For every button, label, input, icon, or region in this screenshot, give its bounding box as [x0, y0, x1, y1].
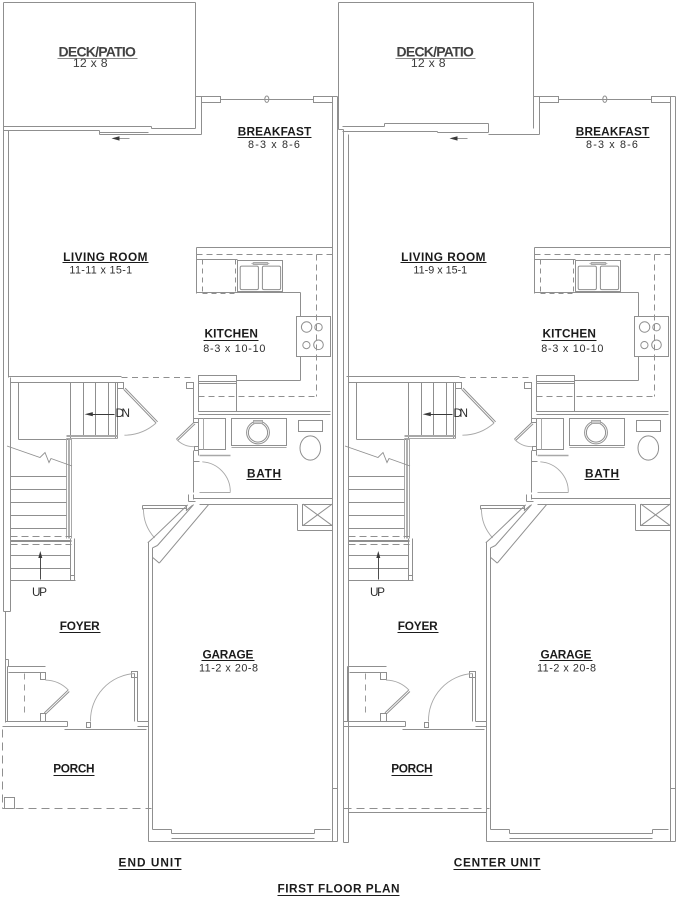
svg-text:11-2 x 20-8: 11-2 x 20-8	[537, 663, 596, 675]
svg-text:8-3 x 8-6: 8-3 x 8-6	[248, 139, 300, 151]
svg-text:GARAGE: GARAGE	[202, 648, 253, 662]
svg-text:PORCH: PORCH	[53, 762, 94, 776]
svg-text:UP: UP	[32, 585, 47, 599]
svg-text:KITCHEN: KITCHEN	[204, 327, 258, 341]
svg-text:FIRST FLOOR PLAN: FIRST FLOOR PLAN	[277, 881, 399, 895]
svg-text:11-11 x 15-1: 11-11 x 15-1	[69, 264, 132, 276]
svg-text:12 x 8: 12 x 8	[73, 56, 108, 70]
svg-text:8-3 x 10-10: 8-3 x 10-10	[541, 343, 603, 355]
svg-text:12 x 8: 12 x 8	[411, 56, 446, 70]
svg-text:FOYER: FOYER	[60, 619, 100, 633]
svg-text:GARAGE: GARAGE	[540, 648, 591, 662]
svg-text:LIVING ROOM: LIVING ROOM	[63, 250, 148, 264]
svg-text:UP: UP	[370, 585, 385, 599]
svg-text:FOYER: FOYER	[398, 619, 438, 633]
svg-text:LIVING ROOM: LIVING ROOM	[401, 250, 486, 264]
svg-text:BREAKFAST: BREAKFAST	[238, 124, 312, 138]
svg-text:BATH: BATH	[585, 466, 619, 480]
svg-text:11-9 x 15-1: 11-9 x 15-1	[413, 264, 467, 276]
svg-text:END UNIT: END UNIT	[119, 855, 183, 869]
svg-text:8-3 x 8-6: 8-3 x 8-6	[586, 139, 638, 151]
svg-text:DN: DN	[116, 406, 131, 420]
svg-text:8-3 x 10-10: 8-3 x 10-10	[203, 343, 265, 355]
svg-text:11-2 x 20-8: 11-2 x 20-8	[199, 663, 258, 675]
svg-text:DN: DN	[454, 406, 469, 420]
svg-text:PORCH: PORCH	[391, 762, 432, 776]
svg-text:KITCHEN: KITCHEN	[542, 327, 596, 341]
svg-text:CENTER UNIT: CENTER UNIT	[454, 855, 541, 869]
svg-text:BREAKFAST: BREAKFAST	[576, 124, 650, 138]
svg-text:BATH: BATH	[247, 466, 281, 480]
